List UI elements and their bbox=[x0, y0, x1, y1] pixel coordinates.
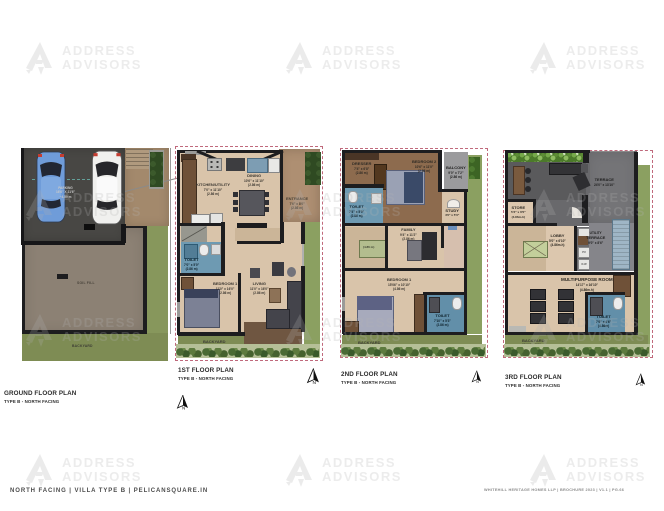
svg-text:N: N bbox=[182, 406, 185, 411]
svg-text:N: N bbox=[476, 380, 479, 384]
svg-text:N: N bbox=[312, 380, 316, 385]
svg-text:N: N bbox=[640, 383, 643, 387]
